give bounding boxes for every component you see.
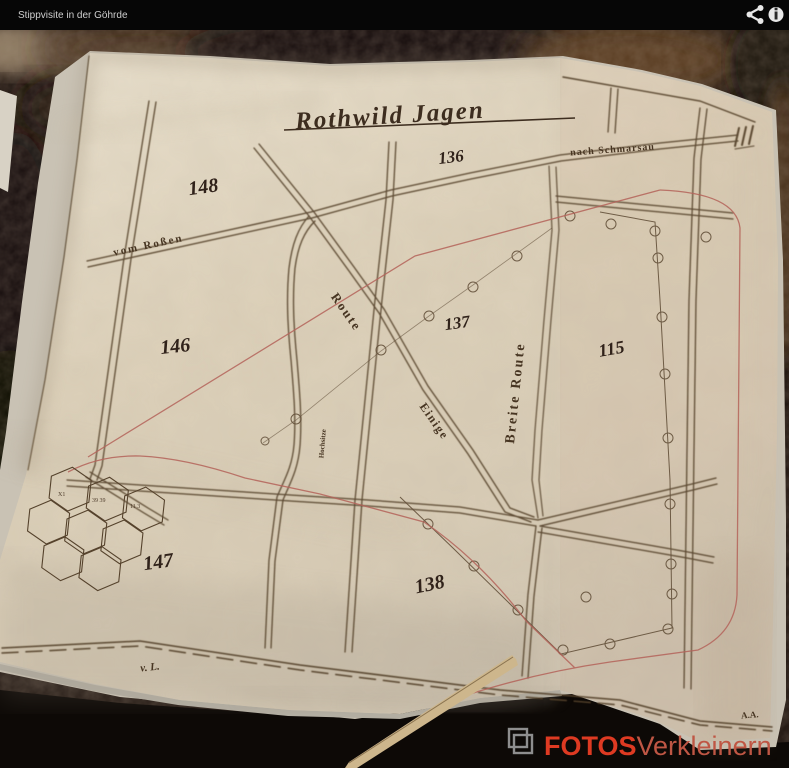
svg-text:148: 148 — [187, 174, 220, 200]
svg-text:X1: X1 — [58, 492, 65, 498]
svg-text:147: 147 — [142, 549, 176, 575]
svg-text:137: 137 — [443, 312, 472, 335]
svg-text:A.A.: A.A. — [741, 709, 759, 720]
svg-text:FOTOSVerkleinern: FOTOSVerkleinern — [544, 731, 772, 761]
svg-text:136: 136 — [437, 146, 465, 168]
svg-text:v. L.: v. L. — [140, 661, 161, 675]
svg-text:146: 146 — [159, 334, 191, 359]
svg-text:11 3: 11 3 — [130, 504, 140, 510]
svg-text:Stippvisite in der Göhrde: Stippvisite in der Göhrde — [18, 10, 128, 21]
svg-text:39 39: 39 39 — [92, 498, 106, 504]
